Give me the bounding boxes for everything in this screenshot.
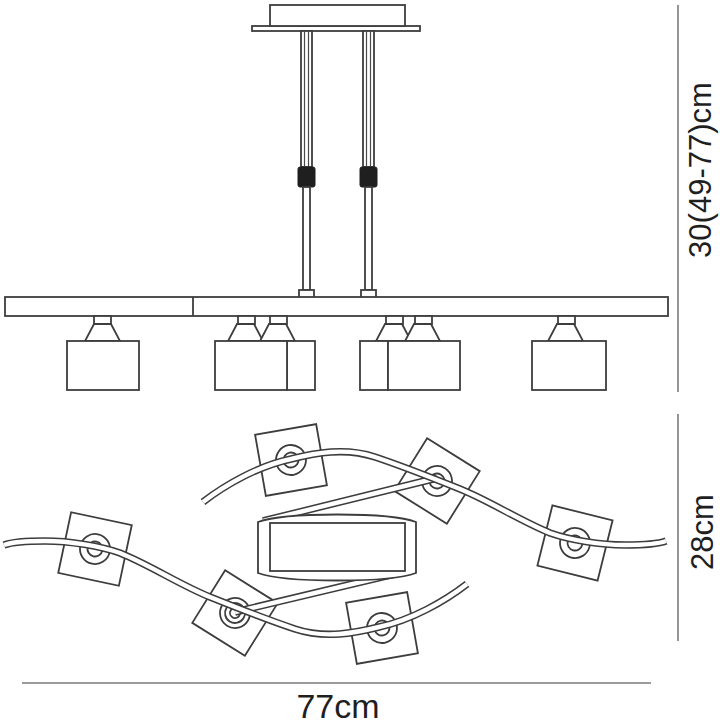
rod-upper-tube bbox=[301, 31, 312, 167]
lamp-shade bbox=[67, 341, 139, 390]
lamp-shade bbox=[215, 341, 287, 390]
lamp-unit-side-2-double bbox=[215, 316, 315, 390]
side-view bbox=[5, 5, 668, 390]
lamp-neck bbox=[405, 324, 440, 341]
spot-head-4 bbox=[192, 570, 277, 655]
lamp-shade bbox=[532, 341, 606, 390]
line-drawing: 30(49-77)cm 28cm 77cm bbox=[0, 0, 720, 720]
height-adjuster-sleeve bbox=[298, 167, 315, 187]
rod-upper-tube bbox=[363, 31, 374, 167]
central-body-inner bbox=[270, 523, 405, 571]
lamp-unit-side-4 bbox=[532, 316, 606, 390]
lamp-shade-back bbox=[287, 341, 315, 390]
suspension-rod-right bbox=[360, 31, 377, 298]
central-body bbox=[258, 515, 416, 581]
canopy-box bbox=[270, 5, 405, 26]
lamp-shade-back bbox=[360, 341, 388, 390]
height-dimension-label: 30(49-77)cm bbox=[683, 82, 718, 258]
height-adjuster-sleeve bbox=[360, 167, 377, 187]
lamp-neck bbox=[548, 324, 583, 341]
lamp-neck bbox=[260, 324, 295, 341]
product-dimension-diagram: 30(49-77)cm 28cm 77cm bbox=[0, 0, 720, 720]
top-view bbox=[4, 424, 666, 664]
width-dimension-label: 77cm bbox=[296, 687, 379, 720]
rod-lower-tube bbox=[365, 187, 372, 290]
lamp-neck bbox=[85, 324, 120, 341]
lamp-unit-side-1 bbox=[67, 316, 139, 390]
lamp-neck bbox=[228, 324, 263, 341]
rod-lower-tube bbox=[303, 187, 310, 290]
lamp-unit-side-3-double bbox=[360, 316, 460, 390]
suspension-rod-left bbox=[298, 31, 315, 298]
support-bar bbox=[5, 297, 668, 316]
depth-dimension-label: 28cm bbox=[685, 494, 720, 570]
lamp-shade bbox=[388, 341, 460, 390]
